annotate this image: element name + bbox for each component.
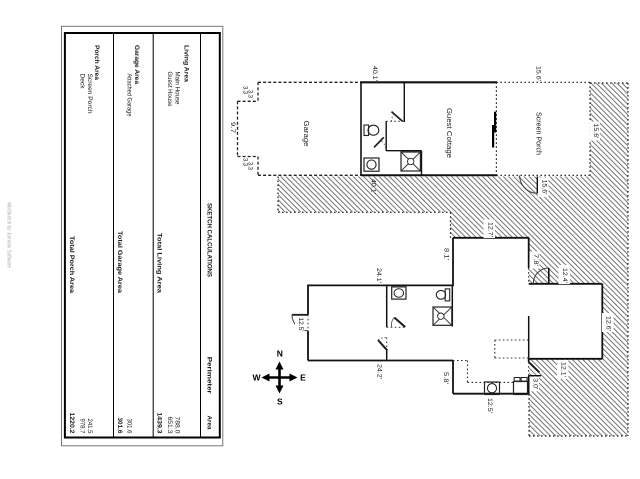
svg-text:12.6': 12.6'	[605, 316, 612, 331]
svg-text:8.1': 8.1'	[443, 248, 450, 260]
svg-text:12.1': 12.1'	[560, 362, 567, 377]
svg-text:12.7': 12.7'	[487, 222, 494, 237]
svg-text:788.0: 788.0	[174, 417, 181, 434]
svg-text:Guest Cottage: Guest Cottage	[445, 108, 452, 158]
svg-text:24.1': 24.1'	[375, 268, 382, 283]
svg-text:15.6': 15.6'	[592, 124, 599, 139]
svg-text:Garage: Garage	[302, 121, 309, 147]
svg-text:Porch Area: Porch Area	[93, 45, 100, 80]
svg-text:3.0': 3.0'	[532, 378, 539, 389]
svg-text:Total Living Area: Total Living Area	[156, 233, 163, 294]
svg-text:Guest House: Guest House	[166, 72, 173, 107]
svg-text:WinSketch by Jammin Software: WinSketch by Jammin Software	[6, 202, 12, 268]
svg-text:S: S	[277, 397, 283, 407]
svg-text:E: E	[300, 373, 306, 383]
svg-text:301.6: 301.6	[116, 418, 123, 434]
svg-text:12.5': 12.5'	[297, 318, 304, 332]
svg-text:651.3: 651.3	[166, 417, 173, 434]
svg-text:15.6': 15.6'	[541, 180, 548, 195]
svg-text:40.1': 40.1'	[371, 66, 378, 81]
svg-text:1439.3: 1439.3	[156, 413, 163, 434]
svg-text:Attached Garage: Attached Garage	[126, 74, 133, 117]
svg-text:W: W	[252, 373, 261, 383]
svg-text:3.3: 3.3	[247, 90, 254, 98]
svg-text:Screen Porch: Screen Porch	[535, 112, 542, 155]
svg-text:241.5: 241.5	[86, 419, 93, 434]
svg-text:Total Garage Area: Total Garage Area	[116, 231, 123, 294]
svg-text:Garage Area: Garage Area	[133, 45, 140, 84]
svg-text:Living Area: Living Area	[183, 45, 190, 82]
svg-text:5.8': 5.8'	[442, 372, 449, 384]
svg-text:1220.2: 1220.2	[68, 413, 75, 434]
svg-text:9.7: 9.7	[229, 122, 236, 134]
svg-text:15.6': 15.6'	[535, 66, 542, 81]
svg-text:Deck: Deck	[79, 74, 86, 90]
svg-text:Perimeter: Perimeter	[205, 357, 212, 395]
svg-text:24.2': 24.2'	[376, 364, 383, 379]
svg-text:Total Porch Area: Total Porch Area	[68, 236, 75, 293]
svg-text:Screen Porch: Screen Porch	[86, 74, 93, 114]
svg-text:Main House: Main House	[174, 72, 181, 105]
svg-text:12.4': 12.4'	[561, 268, 568, 283]
svg-text:301.6: 301.6	[126, 419, 133, 434]
svg-text:978.7: 978.7	[79, 419, 86, 434]
svg-text:40.1': 40.1'	[370, 179, 377, 194]
svg-text:SKETCH CALCULATIONS: SKETCH CALCULATIONS	[205, 203, 212, 278]
svg-text:Area: Area	[205, 416, 212, 430]
svg-text:7.8': 7.8'	[532, 254, 539, 266]
svg-text:N: N	[277, 349, 283, 359]
svg-text:12.5': 12.5'	[486, 398, 493, 413]
svg-text:3.3: 3.3	[247, 162, 254, 170]
